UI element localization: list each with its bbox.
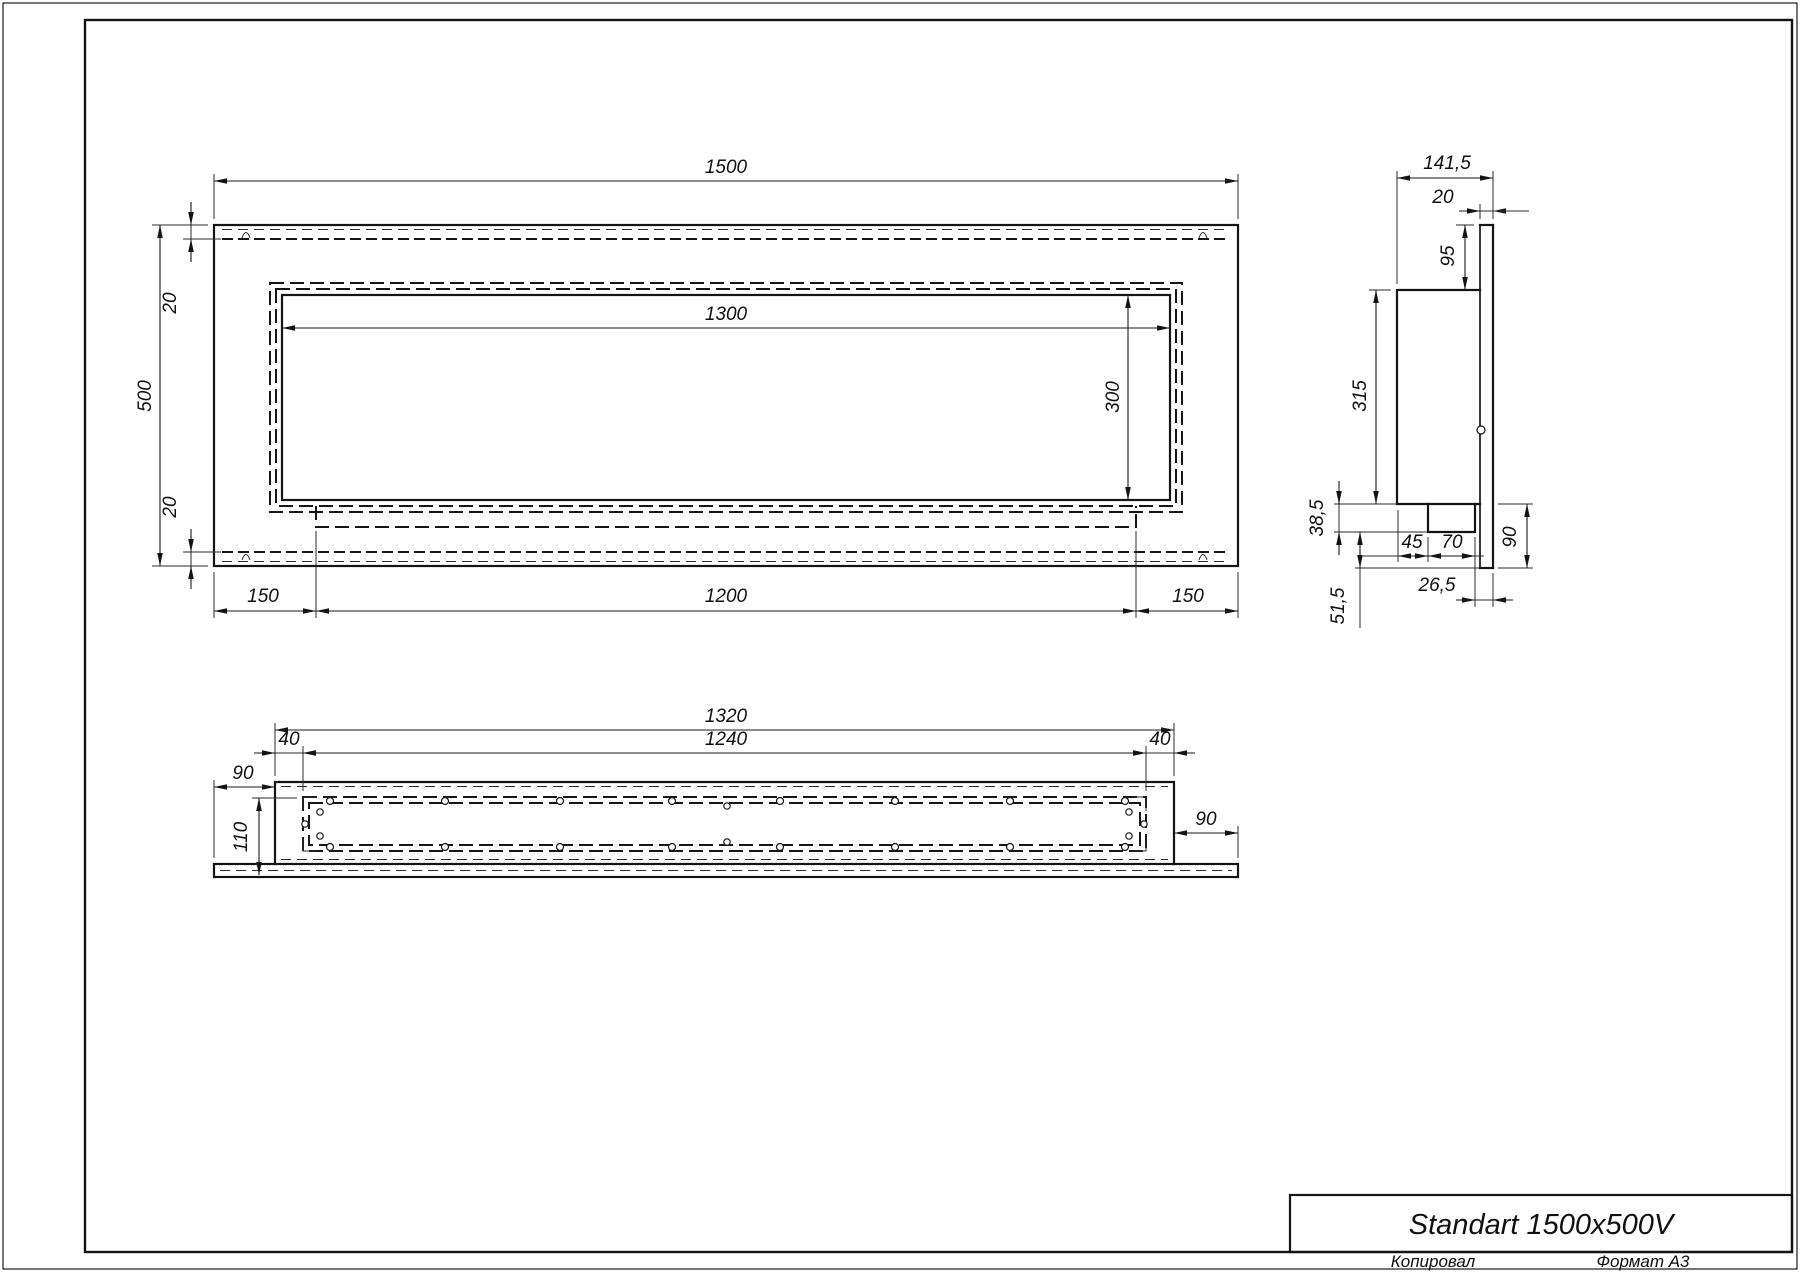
dim-side-tray-drop: 38,5 <box>1307 499 1328 536</box>
side-view: 141,5 20 95 315 38,5 45 <box>1307 153 1533 628</box>
drawing-frame <box>85 20 1792 1252</box>
front-shelf-hidden-line <box>316 506 1136 527</box>
bottom-opening-hidden-rect-2 <box>309 803 1140 845</box>
side-tray-outline <box>1428 504 1475 532</box>
side-mount-hole <box>1477 426 1485 434</box>
edge-mark-icon <box>242 555 250 561</box>
footer-format-label: Формат А3 <box>1596 1252 1690 1271</box>
dim-side-plate-overhang: 26,5 <box>1418 575 1456 596</box>
bottom-view: 1320 1240 40 40 90 110 90 <box>214 706 1238 877</box>
dim-bottom-body-width: 1320 <box>705 706 748 727</box>
front-view-dimensions: 1500 500 20 20 1300 300 <box>135 157 1238 618</box>
dim-side-top-offset: 95 <box>1438 245 1459 267</box>
mounting-holes <box>302 798 1147 851</box>
front-opening-rect <box>282 295 1170 500</box>
dim-side-body-height: 315 <box>1350 380 1371 412</box>
edge-marks <box>242 233 1207 561</box>
page-border <box>3 3 1797 1269</box>
dim-side-lower-height: 90 <box>1500 526 1521 548</box>
dim-side-tray-inset: 45 <box>1401 532 1423 553</box>
front-view: 1500 500 20 20 1300 300 <box>135 157 1238 618</box>
dim-bottom-opening-width: 1240 <box>705 729 748 750</box>
dim-front-opening-height: 300 <box>1103 381 1124 413</box>
edge-mark-icon <box>1199 233 1207 239</box>
drawing-sheet: 1500 500 20 20 1300 300 <box>0 0 1800 1273</box>
side-view-dimensions: 141,5 20 95 315 38,5 45 <box>1307 153 1533 628</box>
page-frame <box>3 3 1797 1269</box>
dim-bottom-body-depth: 110 <box>231 821 252 852</box>
dim-front-bottom-inset: 20 <box>160 496 181 519</box>
edge-mark-icon <box>1199 555 1207 561</box>
dim-side-plate-thickness: 20 <box>1431 187 1454 208</box>
dim-bottom-left-overhang: 90 <box>232 763 254 784</box>
dim-front-overall-height: 500 <box>135 380 156 412</box>
footer-copied-label: Копировал <box>1391 1252 1476 1271</box>
dim-front-left-margin: 150 <box>247 586 279 607</box>
dim-bottom-right-overhang: 90 <box>1195 809 1217 830</box>
edge-mark-icon <box>242 233 250 239</box>
dim-front-opening-width: 1300 <box>705 304 748 325</box>
dim-side-tray-depth: 70 <box>1441 532 1463 553</box>
technical-drawing: 1500 500 20 20 1300 300 <box>0 0 1800 1273</box>
dim-front-overall-width: 1500 <box>705 157 748 178</box>
dim-bottom-right-inset: 40 <box>1149 729 1171 750</box>
dim-front-right-margin: 150 <box>1172 586 1204 607</box>
dim-front-top-inset: 20 <box>160 292 181 315</box>
front-outer-rect <box>214 225 1238 566</box>
dim-side-bottom-offset: 51,5 <box>1328 587 1349 624</box>
dim-front-shelf-width: 1200 <box>705 586 748 607</box>
bottom-view-dimensions: 1320 1240 40 40 90 110 90 <box>214 706 1238 875</box>
title-block: Standart 1500x500V Копировал Формат А3 <box>1290 1195 1792 1271</box>
dim-bottom-left-inset: 40 <box>278 729 300 750</box>
dim-side-overall-depth: 141,5 <box>1423 153 1471 174</box>
side-body-outline <box>1397 290 1480 504</box>
title-block-model: Standart 1500x500V <box>1409 1209 1676 1241</box>
